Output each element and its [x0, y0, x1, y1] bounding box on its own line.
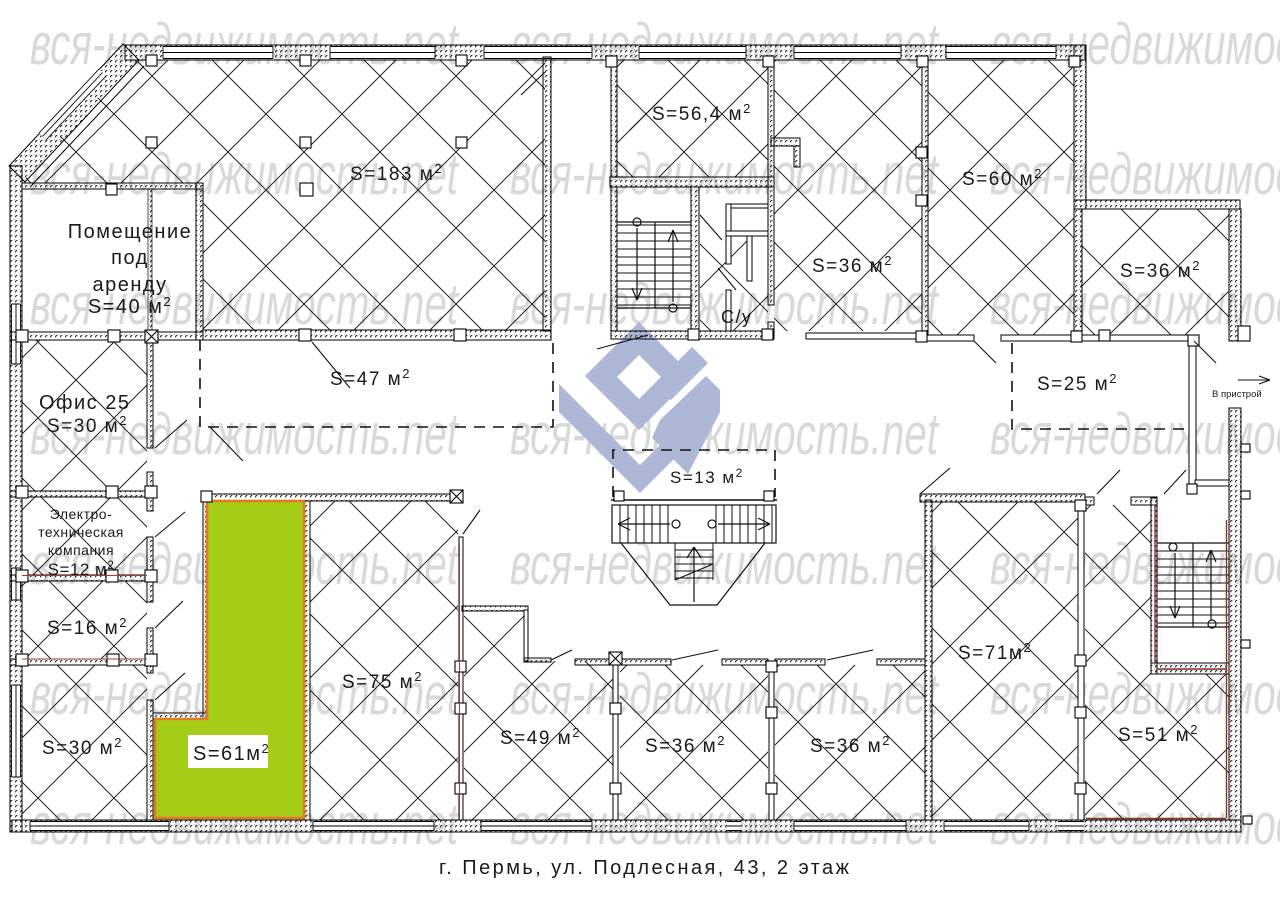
svg-text:S=36 м2: S=36 м2 [810, 733, 891, 757]
svg-text:S=12 м2: S=12 м2 [48, 558, 115, 579]
svg-text:под: под [111, 247, 149, 269]
svg-text:С/у: С/у [721, 307, 753, 327]
svg-text:вся-недвижимость.net: вся-недвижимость.net [510, 532, 940, 597]
svg-text:S=36 м2: S=36 м2 [812, 253, 893, 277]
svg-text:аренду: аренду [92, 274, 167, 296]
svg-text:S=36 м2: S=36 м2 [1120, 258, 1201, 282]
svg-text:S=30 м2: S=30 м2 [42, 735, 123, 759]
svg-text:S=56,4 м2: S=56,4 м2 [652, 101, 752, 125]
svg-text:S=183 м2: S=183 м2 [350, 161, 443, 185]
svg-text:S=16 м2: S=16 м2 [47, 615, 128, 639]
svg-text:S=51 м2: S=51 м2 [1118, 722, 1199, 746]
svg-text:S=71м2: S=71м2 [958, 640, 1032, 664]
svg-text:S=36 м2: S=36 м2 [645, 733, 726, 757]
svg-text:S=30 м2: S=30 м2 [47, 413, 128, 437]
svg-text:г. Пермь, ул. Подлесная, 43, 2: г. Пермь, ул. Подлесная, 43, 2 этаж [439, 857, 851, 879]
svg-text:S=75 м2: S=75 м2 [342, 669, 423, 693]
svg-text:S=49 м2: S=49 м2 [500, 725, 581, 749]
svg-text:Помещение: Помещение [68, 221, 193, 243]
svg-text:S=40 м2: S=40 м2 [88, 294, 172, 318]
svg-text:S=61м2: S=61м2 [193, 741, 270, 765]
svg-text:компания: компания [48, 542, 114, 558]
svg-text:S=60 м2: S=60 м2 [962, 166, 1043, 190]
svg-text:S=13 м2: S=13 м2 [670, 466, 744, 487]
svg-text:техническая: техническая [38, 524, 124, 540]
svg-text:S=25 м2: S=25 м2 [1037, 371, 1118, 395]
svg-text:В пристрой: В пристрой [1212, 389, 1262, 400]
svg-text:Электро-: Электро- [50, 506, 112, 522]
svg-text:S=47 м2: S=47 м2 [330, 366, 411, 390]
svg-text:Офис 25: Офис 25 [39, 392, 131, 414]
